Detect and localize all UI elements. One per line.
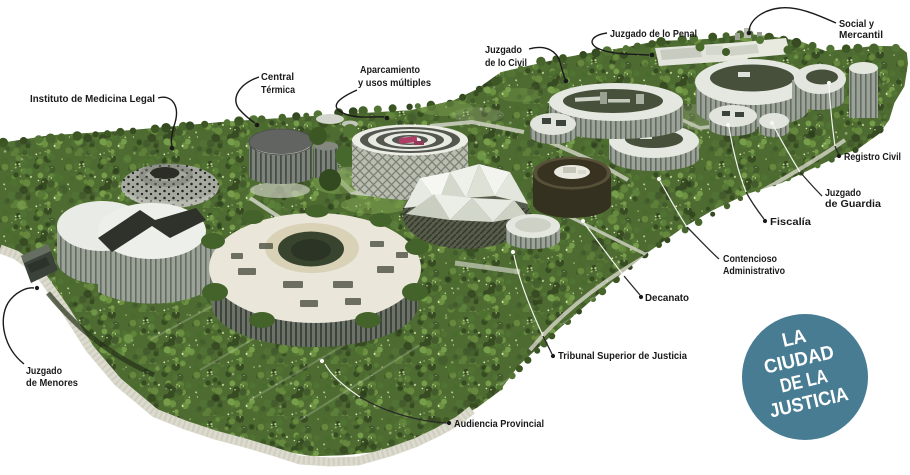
- svg-text:Central: Central: [261, 72, 294, 83]
- svg-text:Juzgado: Juzgado: [26, 366, 62, 377]
- svg-text:Instituto de Medicina Legal: Instituto de Medicina Legal: [30, 94, 155, 105]
- svg-text:Juzgado: Juzgado: [825, 188, 861, 199]
- svg-text:Tribunal Superior de Justicia: Tribunal Superior de Justicia: [558, 351, 688, 362]
- svg-text:de Guardia: de Guardia: [825, 199, 882, 210]
- svg-text:Audiencia Provincial: Audiencia Provincial: [454, 419, 544, 430]
- svg-text:de lo Civil: de lo Civil: [485, 58, 527, 69]
- svg-text:Juzgado de lo Penal: Juzgado de lo Penal: [610, 29, 697, 40]
- svg-text:Registro Civil: Registro Civil: [844, 152, 901, 163]
- svg-text:Térmica: Térmica: [261, 85, 295, 96]
- svg-text:Aparcamiento: Aparcamiento: [360, 65, 420, 76]
- svg-text:Decanato: Decanato: [645, 293, 689, 304]
- svg-text:de Menores: de Menores: [26, 378, 79, 389]
- svg-text:y usos múltiples: y usos múltiples: [358, 78, 432, 89]
- svg-text:Administrativo: Administrativo: [723, 266, 785, 277]
- svg-text:Juzgado: Juzgado: [485, 45, 522, 56]
- svg-text:Fiscalía: Fiscalía: [770, 217, 812, 228]
- svg-text:Mercantil: Mercantil: [839, 30, 883, 41]
- svg-text:Contencioso: Contencioso: [723, 254, 777, 265]
- svg-text:Social y: Social y: [839, 19, 875, 30]
